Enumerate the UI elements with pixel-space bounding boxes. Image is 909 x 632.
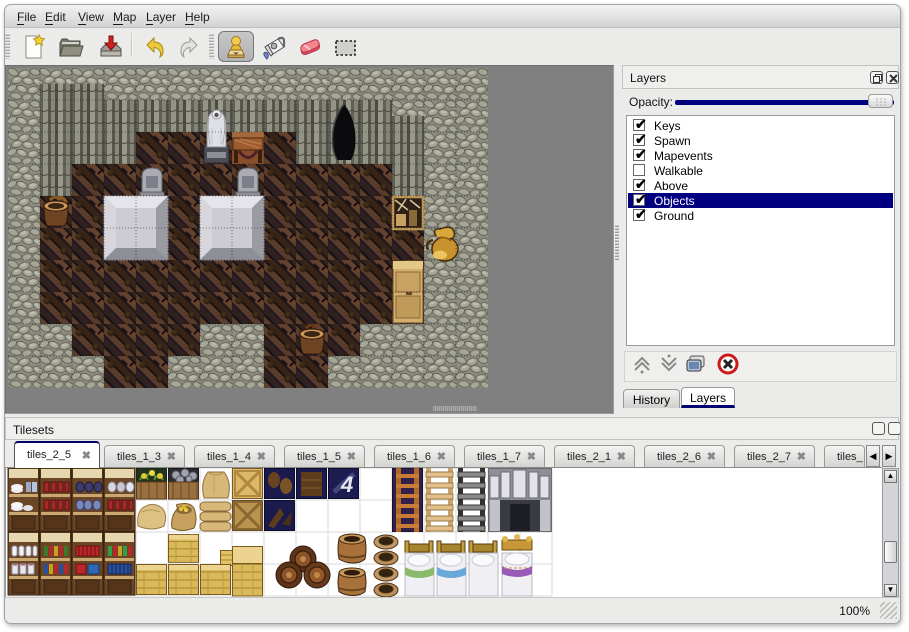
svg-text:4: 4 — [340, 472, 353, 497]
